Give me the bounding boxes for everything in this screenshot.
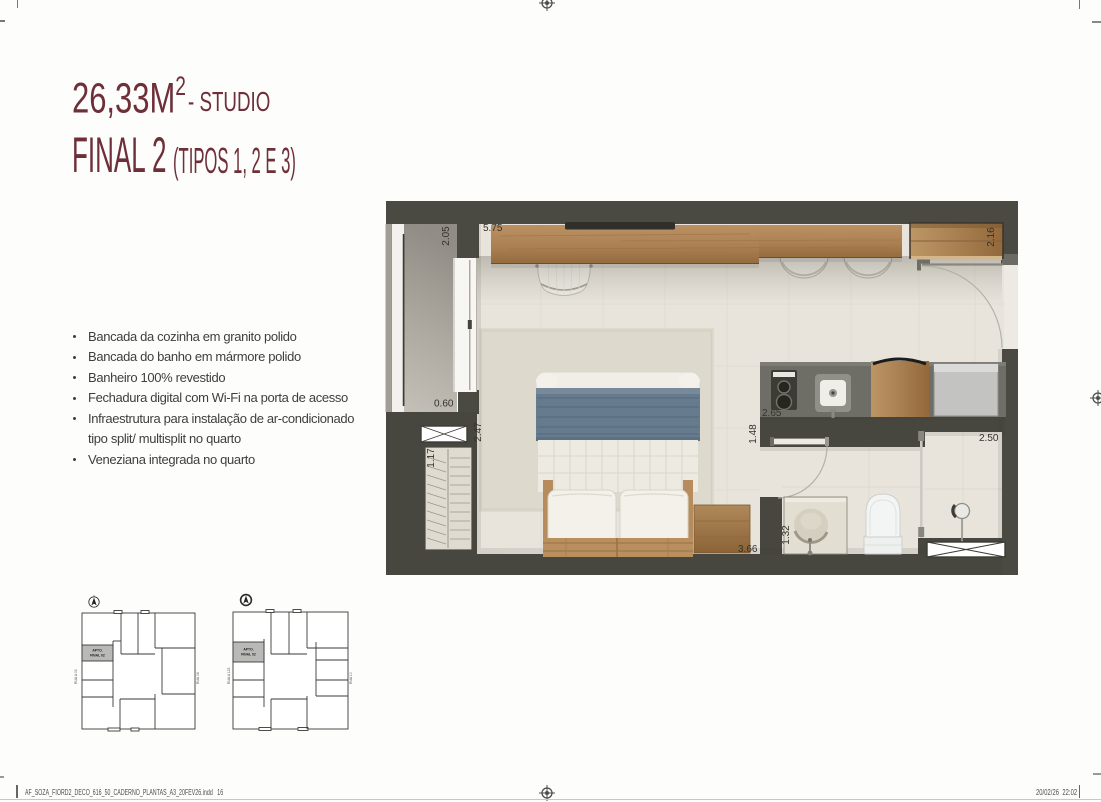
svg-text:2.05: 2.05 [441,226,452,246]
svg-text:FINAL 02: FINAL 02 [241,653,256,657]
svg-text:2.65: 2.65 [762,408,782,419]
svg-text:RUA 10: RUA 10 [349,672,353,684]
svg-text:2.50: 2.50 [979,433,999,444]
svg-text:2.16: 2.16 [986,227,997,247]
svg-text:RUA 04: RUA 04 [196,672,200,684]
svg-text:1.48: 1.48 [748,424,759,444]
svg-text:1.17: 1.17 [426,448,437,468]
svg-text:3.66: 3.66 [738,544,758,555]
svg-text:5.75: 5.75 [483,223,503,234]
svg-text:0.60: 0.60 [434,399,454,410]
svg-text:APTO.: APTO. [243,648,253,652]
svg-text:RUA A 123: RUA A 123 [227,667,231,684]
svg-text:APTO.: APTO. [92,649,102,653]
svg-text:2.47: 2.47 [473,422,484,442]
svg-text:1.32: 1.32 [781,525,792,545]
svg-text:RUA A 03: RUA A 03 [74,669,78,684]
svg-text:FINAL 02: FINAL 02 [90,654,105,658]
